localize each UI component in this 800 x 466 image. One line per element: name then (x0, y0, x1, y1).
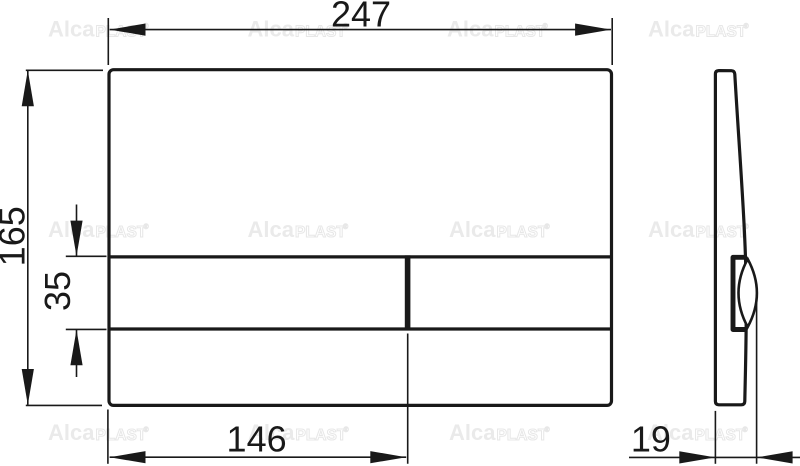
svg-text:19: 19 (631, 419, 671, 460)
svg-text:165: 165 (0, 206, 32, 266)
svg-text:35: 35 (37, 271, 78, 311)
svg-text:247: 247 (331, 0, 391, 35)
svg-text:146: 146 (227, 419, 287, 460)
